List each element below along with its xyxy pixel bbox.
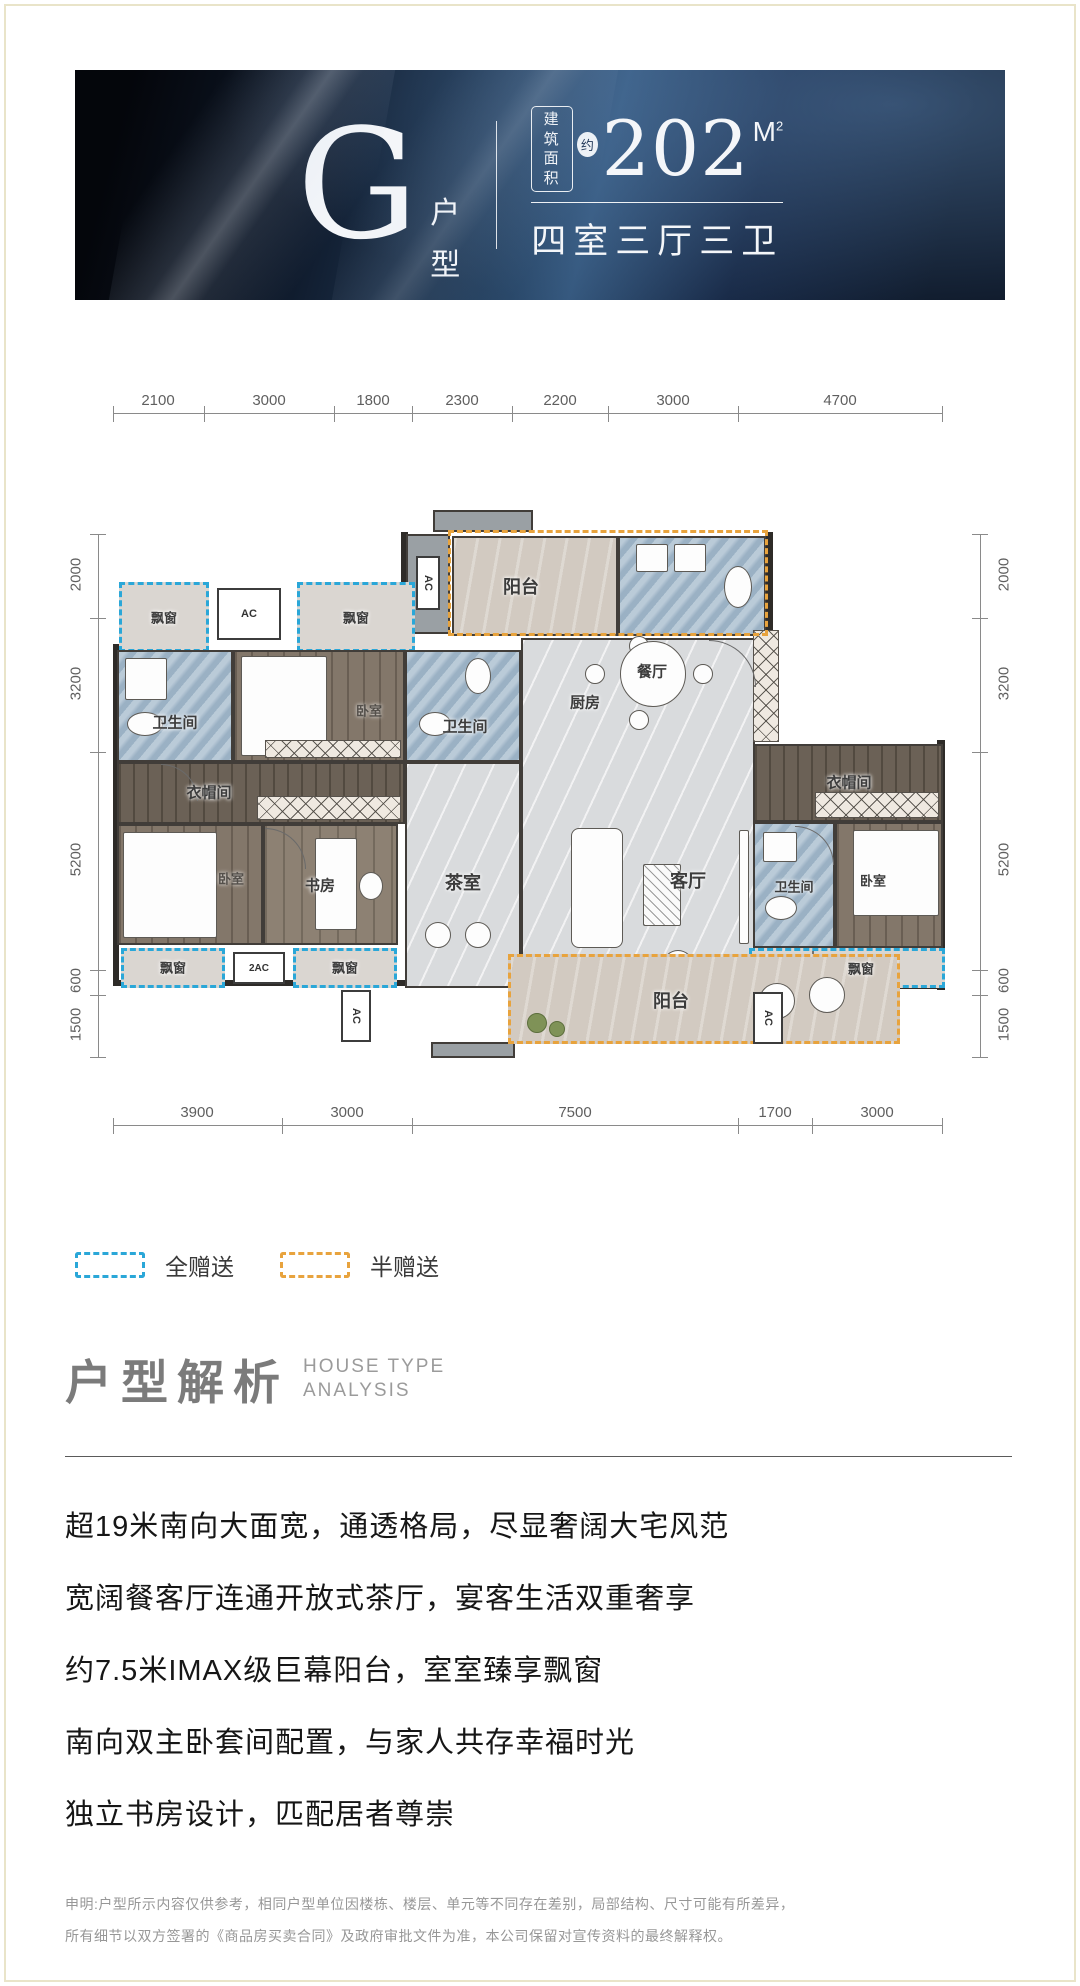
dining-chair-icon [585, 664, 605, 684]
toilet-icon [765, 896, 797, 920]
dimension-line-left: 2000 3200 5200 600 1500 [84, 534, 114, 1058]
room-bathroom-2 [405, 650, 521, 762]
room-label-bay-window: 飘窗 [848, 959, 874, 978]
room-label-balcony-top: 阳台 [503, 573, 539, 599]
room-bedroom-right [835, 822, 943, 948]
tea-chair-icon [425, 922, 451, 948]
dim-label: 2100 [141, 392, 174, 409]
legend-full-gift-label: 全赠送 [165, 1248, 234, 1282]
room-label-cloakroom: 衣帽间 [826, 772, 871, 793]
sink-icon [636, 544, 668, 572]
analysis-title: 户型解析 [65, 1344, 289, 1413]
room-label-bathroom: 卫生间 [774, 877, 813, 896]
plant-icon [549, 1021, 565, 1037]
dim-label: 1500 [68, 995, 85, 1055]
sink-icon [763, 832, 797, 862]
analysis-point: 宽阔餐客厅连通开放式茶厅，宴客生活双重奢享 [65, 1584, 729, 1614]
dining-chair-icon [629, 710, 649, 730]
legend: 全赠送 半赠送 [75, 1248, 439, 1282]
disclaimer-line: 申明:户型所示内容仅供参考，相同户型单位因楼栋、楼层、单元等不同存在差别，局部结… [65, 1888, 794, 1920]
wardrobe-icon [815, 792, 939, 818]
dim-label: 2000 [996, 545, 1013, 605]
wardrobe-icon [257, 796, 401, 820]
legend-full-gift-swatch [75, 1252, 145, 1278]
dim-label: 3000 [860, 1104, 893, 1121]
bed-icon [123, 832, 217, 938]
legend-half-gift-label: 半赠送 [370, 1248, 439, 1282]
room-label-bedroom: 卧室 [356, 701, 382, 720]
dimension-line-top: 2100 3000 1800 2300 2200 3000 4700 [113, 390, 943, 420]
room-label-bay-window: 飘窗 [343, 608, 369, 627]
floorplan-canvas: AC AC [113, 530, 943, 1054]
dim-label: 1700 [758, 1104, 791, 1121]
dim-label: 3000 [252, 392, 285, 409]
dim-label: 2300 [445, 392, 478, 409]
dim-label: 7500 [558, 1104, 591, 1121]
dim-label: 5200 [68, 830, 85, 890]
dimension-line-bottom: 3900 3000 7500 1700 3000 [113, 1102, 943, 1132]
plant-icon [527, 1013, 547, 1033]
room-label-balcony-bottom: 阳台 [653, 987, 689, 1013]
disclaimer: 申明:户型所示内容仅供参考，相同户型单位因楼栋、楼层、单元等不同存在差别，局部结… [65, 1888, 794, 1952]
sink-icon [674, 544, 706, 572]
room-label-study: 书房 [305, 875, 335, 896]
ac-unit-icon: AC [416, 556, 440, 610]
shower-icon [125, 658, 167, 700]
room-label-bay-window: 飘窗 [160, 958, 186, 977]
armchair-icon [663, 950, 693, 978]
room-label-bedroom: 卧室 [218, 869, 244, 888]
dim-label: 1500 [996, 995, 1013, 1055]
analysis-subtitle: HOUSE TYPE ANALYSIS [303, 1355, 445, 1403]
balcony-step [431, 1042, 515, 1058]
dim-label: 4700 [823, 392, 856, 409]
analysis-title-row: 户型解析 HOUSE TYPE ANALYSIS [65, 1344, 445, 1413]
area-unit: M2 [753, 116, 784, 148]
room-bathroom-1 [117, 650, 233, 762]
room-label-bay-window: 飘窗 [151, 608, 177, 627]
analysis-point: 超19米南向大面宽，通透格局，尽显奢阔大宅风范 [65, 1512, 729, 1542]
dim-label: 3200 [996, 654, 1013, 714]
tea-chair-icon [465, 922, 491, 948]
wardrobe-icon [265, 740, 401, 758]
legend-half-gift-swatch [280, 1252, 350, 1278]
room-label-bathroom: 卫生间 [152, 712, 197, 733]
dim-label: 3000 [656, 392, 689, 409]
ac-unit-icon: AC [753, 992, 783, 1044]
room-label-cloakroom: 衣帽间 [186, 782, 231, 803]
analysis-points: 超19米南向大面宽，通透格局，尽显奢阔大宅风范 宽阔餐客厅连通开放式茶厅，宴客生… [65, 1512, 729, 1872]
dim-label: 1800 [356, 392, 389, 409]
area-value: 202 [602, 114, 750, 184]
header-banner: G 户 型 建筑 面积 约 202 M2 四室三厅三卫 [75, 70, 1005, 300]
disclaimer-line: 所有细节以双方签署的《商品房买卖合同》及政府审批文件为准，本公司保留对宣传资料的… [65, 1920, 794, 1952]
entry-step [433, 510, 533, 532]
sofa-icon [571, 828, 623, 948]
dimension-line-right: 2000 3200 5200 600 1500 [966, 534, 996, 1058]
chair-icon [359, 872, 383, 900]
ac-unit-icon: AC [341, 990, 371, 1042]
dim-label: 3000 [330, 1104, 363, 1121]
dim-label: 5200 [996, 830, 1013, 890]
room-label-tea-room: 茶室 [445, 869, 481, 895]
ac-unit-icon: 2AC [233, 952, 285, 984]
room-label-bedroom: 卧室 [860, 871, 886, 890]
room-label-bathroom: 卫生间 [442, 716, 487, 737]
shaft-hatch [753, 630, 779, 742]
room-bath-top [618, 536, 766, 636]
room-label-living: 客厅 [670, 867, 706, 893]
analysis-point: 约7.5米IMAX级巨幕阳台，室室臻享飘窗 [65, 1656, 729, 1686]
room-great-room [521, 638, 755, 988]
room-label-dining: 餐厅 [637, 661, 667, 682]
wall [766, 532, 773, 636]
dim-label: 3900 [180, 1104, 213, 1121]
section-divider [65, 1456, 1012, 1457]
toilet-icon [465, 658, 491, 694]
toilet-icon [724, 566, 752, 608]
room-label-kitchen: 厨房 [570, 692, 600, 713]
flyer-page: G 户 型 建筑 面积 约 202 M2 四室三厅三卫 2100 3000 1 [0, 0, 1080, 1986]
analysis-point: 独立书房设计，匹配居者尊崇 [65, 1800, 729, 1830]
dim-label: 2200 [543, 392, 576, 409]
analysis-point: 南向双主卧套间配置，与家人共存幸福时光 [65, 1728, 729, 1758]
room-label-bay-window: 飘窗 [332, 958, 358, 977]
tv-cabinet-icon [739, 830, 749, 944]
ac-unit-icon: AC [217, 588, 281, 640]
bay-divider [812, 951, 814, 985]
dim-label: 3200 [68, 654, 85, 714]
dim-label: 2000 [68, 545, 85, 605]
